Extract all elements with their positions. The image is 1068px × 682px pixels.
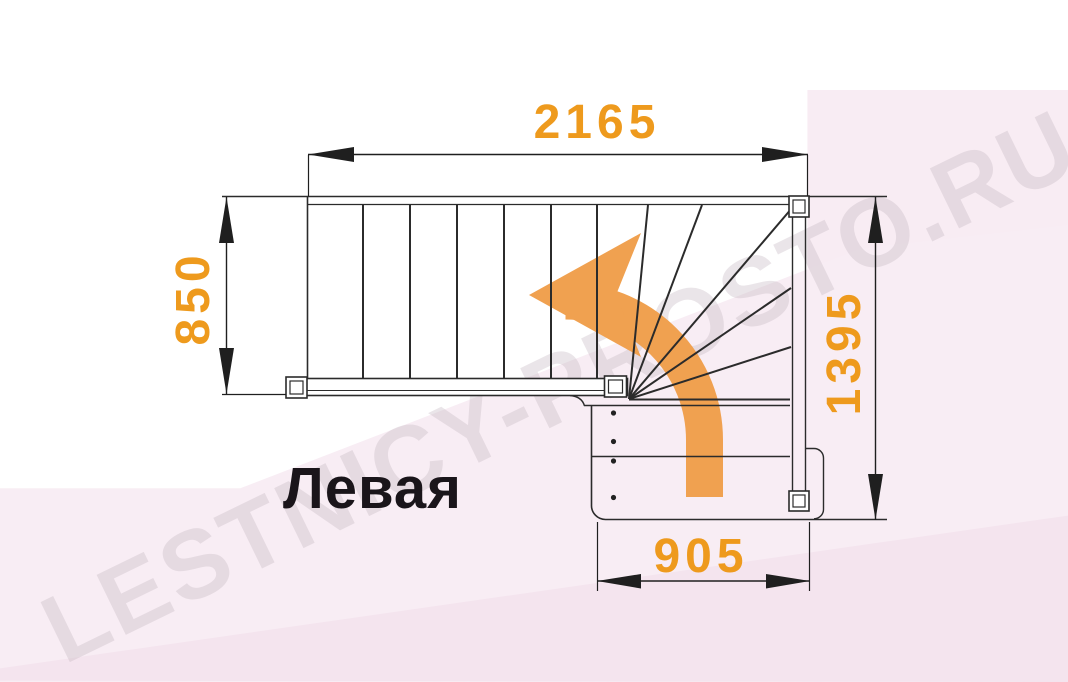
newel-post-inner — [793, 200, 805, 213]
dim-arrow-right — [766, 574, 810, 589]
newel-post-inner — [609, 380, 623, 393]
variant-title: Левая — [283, 460, 462, 518]
newel-post-inner — [793, 495, 805, 507]
nosing-curve — [570, 396, 585, 407]
dim-arrow-right — [762, 147, 808, 162]
dimension-top — [308, 147, 808, 196]
baluster-dot — [611, 495, 616, 500]
handrail — [306, 379, 628, 396]
flight-outline — [591, 406, 887, 520]
dim-label-right-height: 1395 — [821, 289, 869, 416]
baluster-dot — [611, 458, 616, 463]
dim-arrow-up — [219, 197, 234, 243]
staircase-plan-diagram: LESTNICY-PROSTO.RU — [0, 0, 1068, 682]
newel-post-inner — [290, 381, 303, 394]
dim-arrow-down — [868, 474, 883, 520]
dim-label-top-width: 2165 — [534, 99, 661, 147]
dim-arrow-left — [308, 147, 354, 162]
dim-label-bottom-width: 905 — [653, 533, 748, 581]
right-stringer — [793, 210, 806, 498]
dim-label-left-height: 850 — [170, 250, 218, 345]
dim-arrow-up — [868, 197, 883, 243]
winder-fan — [629, 205, 792, 400]
dim-arrow-down — [219, 348, 234, 394]
handrail-bar — [306, 379, 628, 396]
dimension-left — [219, 197, 286, 395]
dim-arrow-left — [597, 574, 641, 589]
baluster-dot — [611, 439, 616, 444]
baluster-dots — [611, 410, 616, 500]
baluster-dot — [611, 410, 616, 415]
